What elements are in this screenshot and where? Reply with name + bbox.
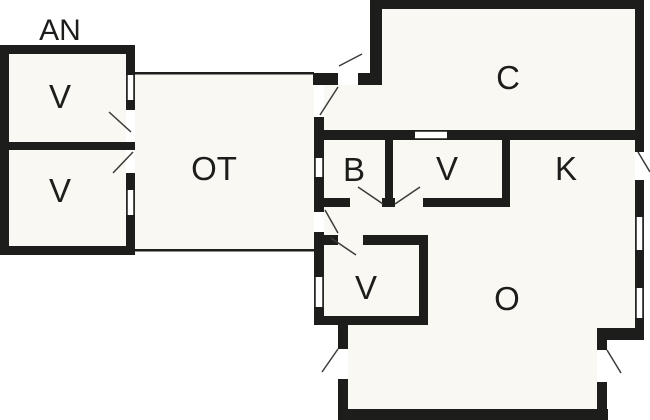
floorplan-canvas: ANVVOTCBVKVO: [0, 0, 650, 420]
wall: [126, 215, 135, 255]
wall: [314, 130, 644, 140]
wall: [0, 142, 135, 150]
wall: [597, 382, 607, 410]
wall: [126, 45, 135, 75]
room-label-v-2: V: [49, 172, 71, 209]
wall: [423, 198, 510, 207]
room-label-o-9: O: [494, 280, 520, 317]
terrace-edge-line: [135, 249, 314, 252]
wall: [363, 235, 428, 245]
door-swing-line: [638, 152, 650, 172]
wall: [370, 0, 382, 85]
wall: [635, 180, 644, 217]
room-label-k-7: K: [555, 150, 577, 187]
door-swing-line: [607, 350, 621, 373]
wall: [370, 0, 644, 9]
room-label-v-8: V: [355, 269, 377, 306]
room-label-ot-3: OT: [191, 150, 237, 187]
wall: [597, 328, 607, 350]
wall: [322, 235, 338, 245]
wall: [635, 0, 644, 152]
wall: [502, 140, 510, 207]
room-label-an-0: AN: [39, 14, 81, 47]
wall: [385, 140, 393, 200]
wall: [635, 250, 644, 288]
wall: [382, 198, 395, 207]
room-label-v-1: V: [49, 78, 71, 115]
room-label-c-4: C: [496, 59, 520, 96]
room-label-v-6: V: [436, 150, 458, 187]
door-swing-line: [322, 349, 338, 372]
wall: [126, 173, 135, 190]
wall: [314, 316, 428, 325]
terrace-edge-line: [135, 72, 314, 75]
wall: [314, 117, 324, 158]
wall: [126, 100, 135, 110]
room-label-b-5: B: [343, 151, 365, 188]
wall: [314, 198, 350, 207]
wall: [313, 73, 338, 85]
wall: [338, 409, 608, 420]
wall: [419, 235, 428, 325]
floor-plan-svg: ANVVOTCBVKVO: [0, 0, 650, 420]
wall: [338, 379, 348, 410]
wall: [0, 246, 135, 255]
wall: [338, 325, 348, 349]
door-swing-line: [339, 54, 362, 66]
